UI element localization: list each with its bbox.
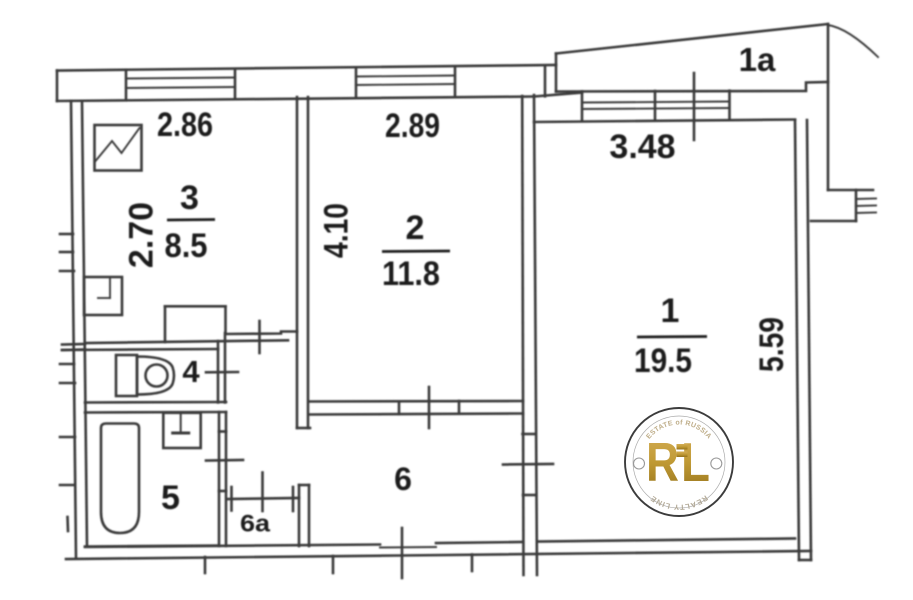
svg-text:2.89: 2.89 bbox=[385, 107, 440, 145]
svg-text:1a: 1a bbox=[739, 41, 776, 78]
svg-text:1: 1 bbox=[661, 292, 680, 330]
svg-text:L: L bbox=[681, 431, 710, 493]
svg-text:5.59: 5.59 bbox=[753, 317, 791, 372]
svg-text:6a: 6a bbox=[240, 511, 271, 538]
svg-text:4.10: 4.10 bbox=[318, 203, 356, 258]
svg-text:R: R bbox=[646, 431, 679, 493]
svg-text:8.5: 8.5 bbox=[165, 227, 208, 265]
svg-text:19.5: 19.5 bbox=[634, 342, 692, 380]
svg-text:2.70: 2.70 bbox=[123, 202, 161, 268]
svg-text:2: 2 bbox=[406, 209, 425, 247]
svg-text:3: 3 bbox=[180, 179, 199, 217]
svg-text:5: 5 bbox=[161, 479, 180, 517]
svg-text:2.86: 2.86 bbox=[157, 106, 213, 144]
svg-text:6: 6 bbox=[394, 461, 412, 497]
svg-text:11.8: 11.8 bbox=[382, 255, 440, 293]
svg-text:3.48: 3.48 bbox=[609, 128, 675, 166]
svg-text:4: 4 bbox=[182, 354, 200, 389]
